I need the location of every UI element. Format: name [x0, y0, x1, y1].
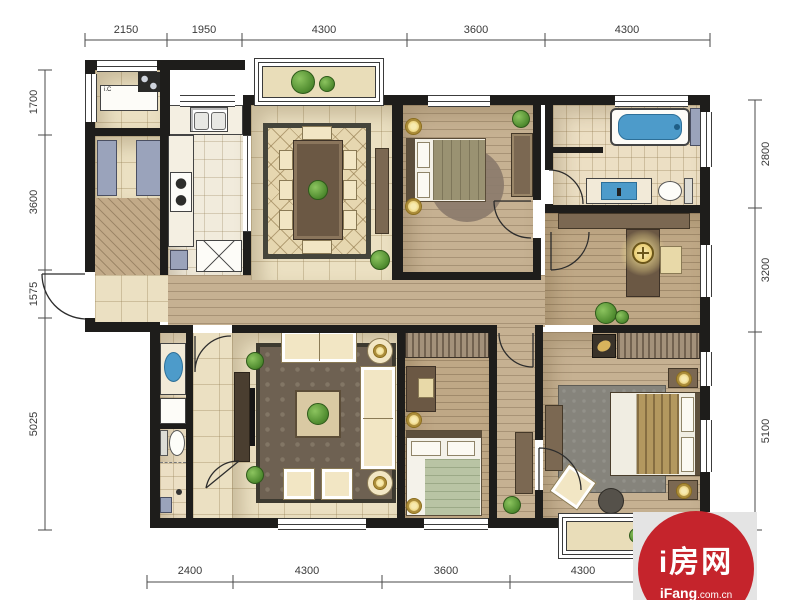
watermark-brand-text: i房网 [638, 537, 754, 581]
window-bedroom3-bottom [424, 518, 488, 530]
master-nightstand-top [668, 368, 698, 388]
master-pillow-2 [681, 437, 694, 472]
bedroom2-plant [512, 110, 530, 128]
smallbath-door-opening [193, 325, 232, 333]
dim-top-2: 1950 [192, 24, 216, 36]
dim-top-3: 4300 [312, 24, 336, 36]
wall-bedroom2-right [533, 95, 541, 280]
master-bed-blanket [637, 394, 679, 474]
dim-left-4: 5025 [28, 412, 40, 436]
kitchen-stove [170, 172, 192, 212]
kitchen-sink [190, 107, 228, 132]
dining-chair-l2 [279, 180, 293, 200]
ottoman-right [321, 468, 353, 500]
window-master-right-2 [700, 420, 712, 472]
dim-left-1: 1700 [28, 90, 40, 114]
wall-corridor-living [232, 325, 402, 333]
sofa-chaise [360, 366, 396, 470]
bed3-headboard [407, 431, 481, 438]
bathroom-partition-wall [553, 147, 603, 153]
window-utility-left [85, 74, 97, 122]
small-bath-vanity [160, 343, 186, 395]
toilet-small-tank [160, 430, 168, 456]
foyer-wardrobe-left [97, 140, 117, 196]
dining-sideboard [375, 148, 389, 234]
floor-plan: i.C [0, 0, 800, 600]
dim-right-1: 2800 [760, 142, 772, 166]
window-living-bottom [278, 518, 366, 530]
master-deco-box [592, 334, 616, 358]
ottoman-left [283, 468, 315, 500]
study-plant-large [595, 302, 617, 324]
corridor-floor [168, 275, 545, 327]
wall-study-master [593, 325, 710, 333]
wall-master-left-lower [535, 490, 543, 518]
bedroom2-lamp-top [405, 118, 422, 135]
toilet-small-bowl [169, 430, 185, 456]
bathroom-vanity [586, 178, 652, 204]
living-plant-top [246, 352, 264, 370]
dim-bottom-4: 4300 [571, 565, 595, 577]
dim-bottom-3: 3600 [434, 565, 458, 577]
dining-chair-r3 [343, 210, 357, 230]
wall-dining-bedroom2 [392, 95, 403, 280]
wall-living-bedroom3 [397, 325, 405, 518]
kitchen-cabinet [196, 240, 242, 272]
corridor-cabinet [515, 432, 533, 494]
dining-plant [370, 250, 390, 270]
wall-utility-right [160, 60, 170, 136]
study-chair [660, 246, 682, 274]
master-bed-frame [610, 392, 700, 476]
tv-screen [250, 388, 255, 446]
deco-leaf [595, 338, 612, 354]
window-bath-right [700, 112, 712, 167]
dim-top-1: 2150 [114, 24, 138, 36]
toilet-main [658, 178, 694, 204]
bathtub-water [618, 114, 682, 140]
kitchen-mat [170, 250, 188, 270]
shower-shelf [160, 497, 172, 513]
watermark-domain-suffix: .com.cn [697, 590, 732, 600]
side-table-lamp-top [373, 344, 387, 358]
master-wardrobe [617, 332, 700, 359]
bed3-pillow-1 [411, 441, 441, 456]
toilet-main-bowl [658, 181, 682, 201]
chaise-cushion-line [363, 418, 393, 419]
entry-corridor-floor [95, 275, 168, 322]
watermark-domain-bold: iFang [660, 585, 697, 600]
dim-right-2: 3200 [760, 258, 772, 282]
dim-bottom-2: 4300 [295, 565, 319, 577]
foyer-wardrobe-right [136, 140, 162, 196]
dining-chair-l3 [279, 210, 293, 230]
window-bath-top [615, 95, 688, 107]
sofa-cushion-line [319, 333, 320, 361]
window-master-right-1 [700, 352, 712, 386]
entry-door-opening [85, 272, 95, 318]
corridor-plant [503, 496, 521, 514]
master-round-stool [598, 488, 624, 514]
wall-bedroom3-right [489, 325, 497, 518]
master-nightstand-bottom [668, 480, 698, 500]
window-bedroom2-top [428, 95, 490, 107]
side-table-lamp-bottom [373, 476, 387, 490]
toilet-main-tank [684, 178, 693, 204]
dim-left-2: 3600 [28, 190, 40, 214]
coffee-table-plant [307, 403, 329, 425]
master-lamp-bottom [676, 483, 692, 499]
master-lamp-top [676, 371, 692, 387]
side-table-top [367, 338, 393, 364]
bedroom2-door-opening [533, 200, 541, 238]
shower-area [160, 462, 186, 513]
dining-bay-window [262, 66, 376, 98]
bed2-pillow-1 [417, 142, 430, 168]
wall-bedroom3-top [402, 325, 497, 333]
entry-hall-wood-floor [95, 198, 160, 275]
dining-chair-top [302, 126, 332, 140]
dim-top-5: 4300 [615, 24, 639, 36]
sofa-two-seat [281, 330, 357, 363]
wall-bedroom2-bottom [403, 272, 533, 280]
vanity-faucet [617, 188, 621, 196]
wall-foyer-kitchen [160, 136, 168, 275]
dining-chair-r1 [343, 150, 357, 170]
window-kitchen-top [180, 95, 235, 107]
dining-chair-bottom [302, 240, 332, 254]
toilet-small [160, 428, 186, 458]
wall-utility-bottom [85, 128, 170, 136]
sink-basin-left [194, 112, 209, 130]
dining-table-plant [308, 180, 328, 200]
bed2-headboard [407, 139, 415, 201]
bedroom3-chair [418, 378, 434, 398]
bedroom3-lamp-bottom [406, 498, 422, 514]
wall-smallbath-divider [155, 424, 193, 429]
bathtub [610, 108, 690, 146]
bath-door-opening [545, 170, 553, 204]
side-table-bottom [367, 470, 393, 496]
bedroom3-wardrobe [405, 332, 489, 358]
kitchen-sliding-door [243, 135, 251, 232]
watermark-domain-text: iFang.com.cn [638, 585, 754, 600]
bed3-blanket [425, 459, 480, 515]
living-plant-bottom [246, 466, 264, 484]
utility-corner-sink [138, 72, 160, 92]
bedroom3-lamp-top [406, 412, 422, 428]
bay-plant-small [319, 76, 335, 92]
bedroom2-wardrobe [511, 133, 533, 197]
dining-chair-r2 [343, 180, 357, 200]
bedroom2-lamp-bottom [405, 198, 422, 215]
study-counter [558, 213, 690, 229]
wall-left-step [85, 322, 160, 332]
master-side-cabinet [545, 405, 563, 471]
wall-bath-bottom [545, 205, 710, 213]
wall-master-left-upper [535, 325, 543, 440]
bay-plant-large [291, 70, 315, 94]
sink-basin-right [211, 112, 226, 130]
bed2-pillow-2 [417, 172, 430, 198]
bed2-frame [406, 138, 486, 202]
study-ceiling-lamp-icon [632, 242, 654, 264]
master-bed-duvet [612, 394, 637, 474]
tv-console [234, 372, 250, 462]
dining-chair-l1 [279, 150, 293, 170]
dim-right-3: 5100 [760, 419, 772, 443]
window-study-right [700, 245, 712, 297]
dim-top-4: 3600 [464, 24, 488, 36]
bathtub-drain [674, 124, 680, 130]
small-bath-cabinet [160, 398, 186, 424]
bed2-blanket [433, 140, 485, 200]
shower-drain [176, 489, 182, 495]
study-plant-small [615, 310, 629, 324]
bed3-pillow-2 [447, 441, 475, 456]
dim-bottom-1: 2400 [178, 565, 202, 577]
dim-left-3: 1575 [28, 282, 40, 306]
window-utility-top [97, 60, 157, 72]
master-pillow-1 [681, 397, 694, 432]
small-bath-sink [164, 352, 183, 382]
hallway-floor [193, 332, 232, 518]
